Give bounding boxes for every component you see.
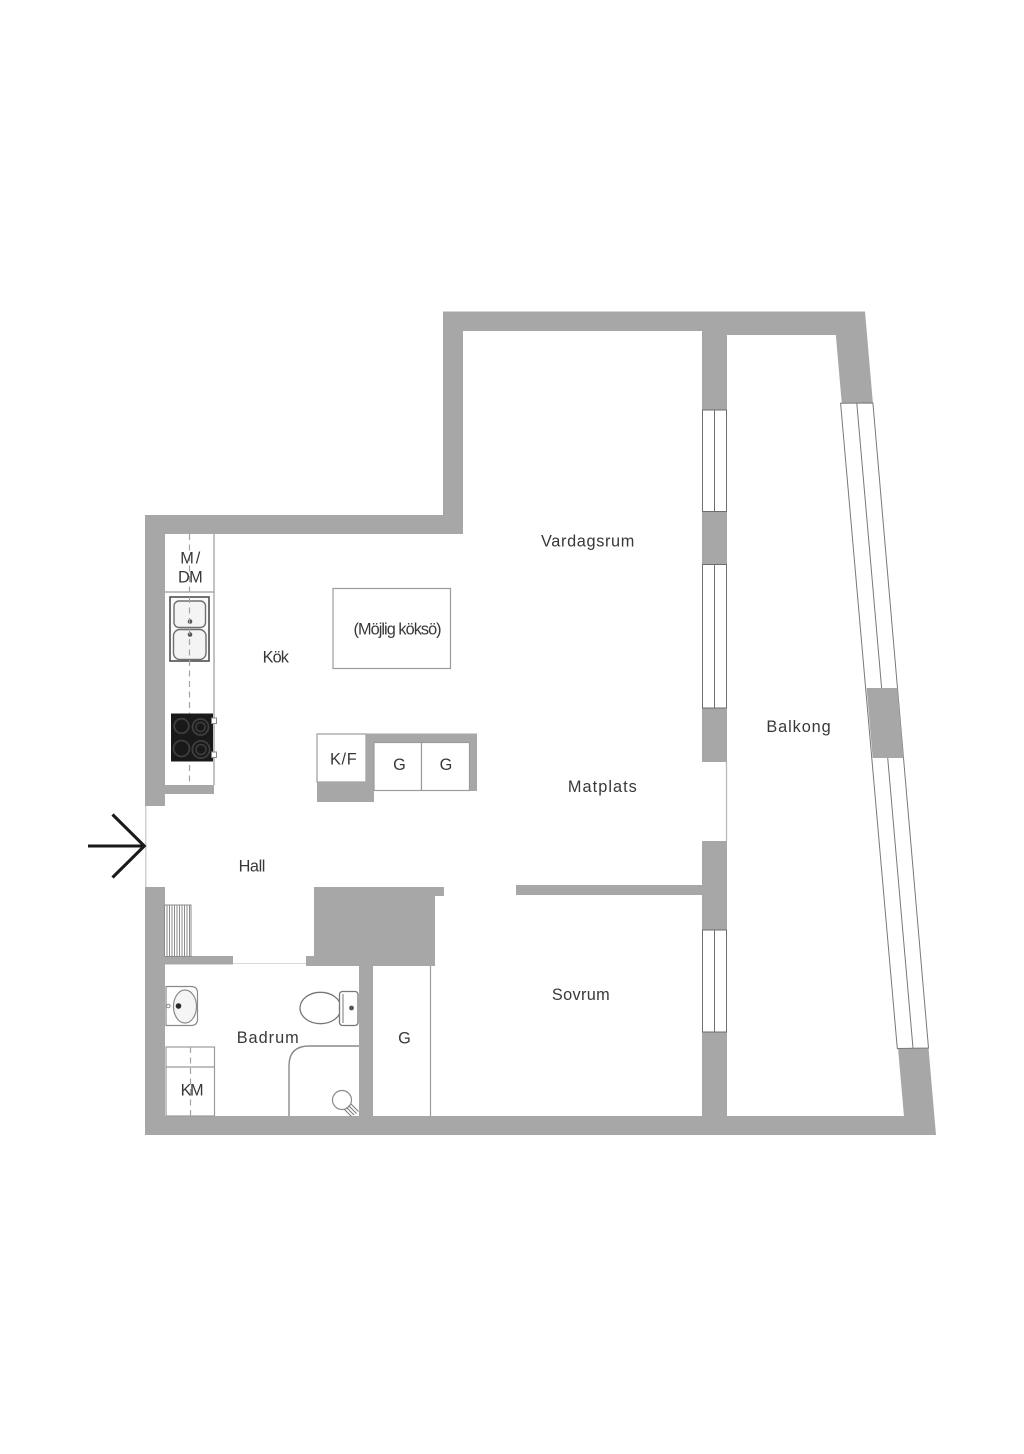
- svg-text:DM: DM: [178, 568, 202, 586]
- svg-text:Badrum: Badrum: [237, 1029, 300, 1047]
- svg-text:Vardagsrum: Vardagsrum: [541, 533, 635, 551]
- svg-text:K/F: K/F: [330, 751, 357, 769]
- svg-text:Matplats: Matplats: [568, 778, 638, 796]
- svg-text:Kök: Kök: [263, 649, 290, 667]
- svg-text:G: G: [398, 1030, 411, 1048]
- svg-text:Hall: Hall: [239, 858, 265, 876]
- svg-text:(Möjlig köksö): (Möjlig köksö): [354, 621, 442, 639]
- svg-text:G: G: [393, 756, 406, 774]
- svg-text:Sovrum: Sovrum: [552, 986, 610, 1004]
- svg-text:M/: M/: [180, 549, 202, 567]
- svg-text:KM: KM: [181, 1082, 203, 1100]
- svg-text:G: G: [440, 756, 453, 774]
- svg-text:Balkong: Balkong: [766, 718, 831, 736]
